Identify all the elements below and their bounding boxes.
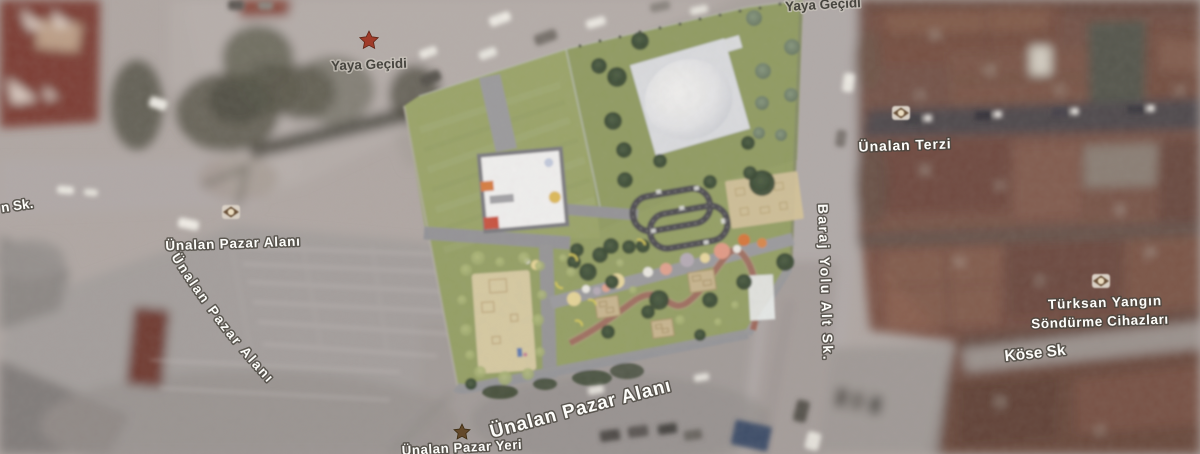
svg-text:Yaya Geçidi: Yaya Geçidi [331,56,407,74]
svg-text:Ünalan Terzi: Ünalan Terzi [858,135,952,154]
